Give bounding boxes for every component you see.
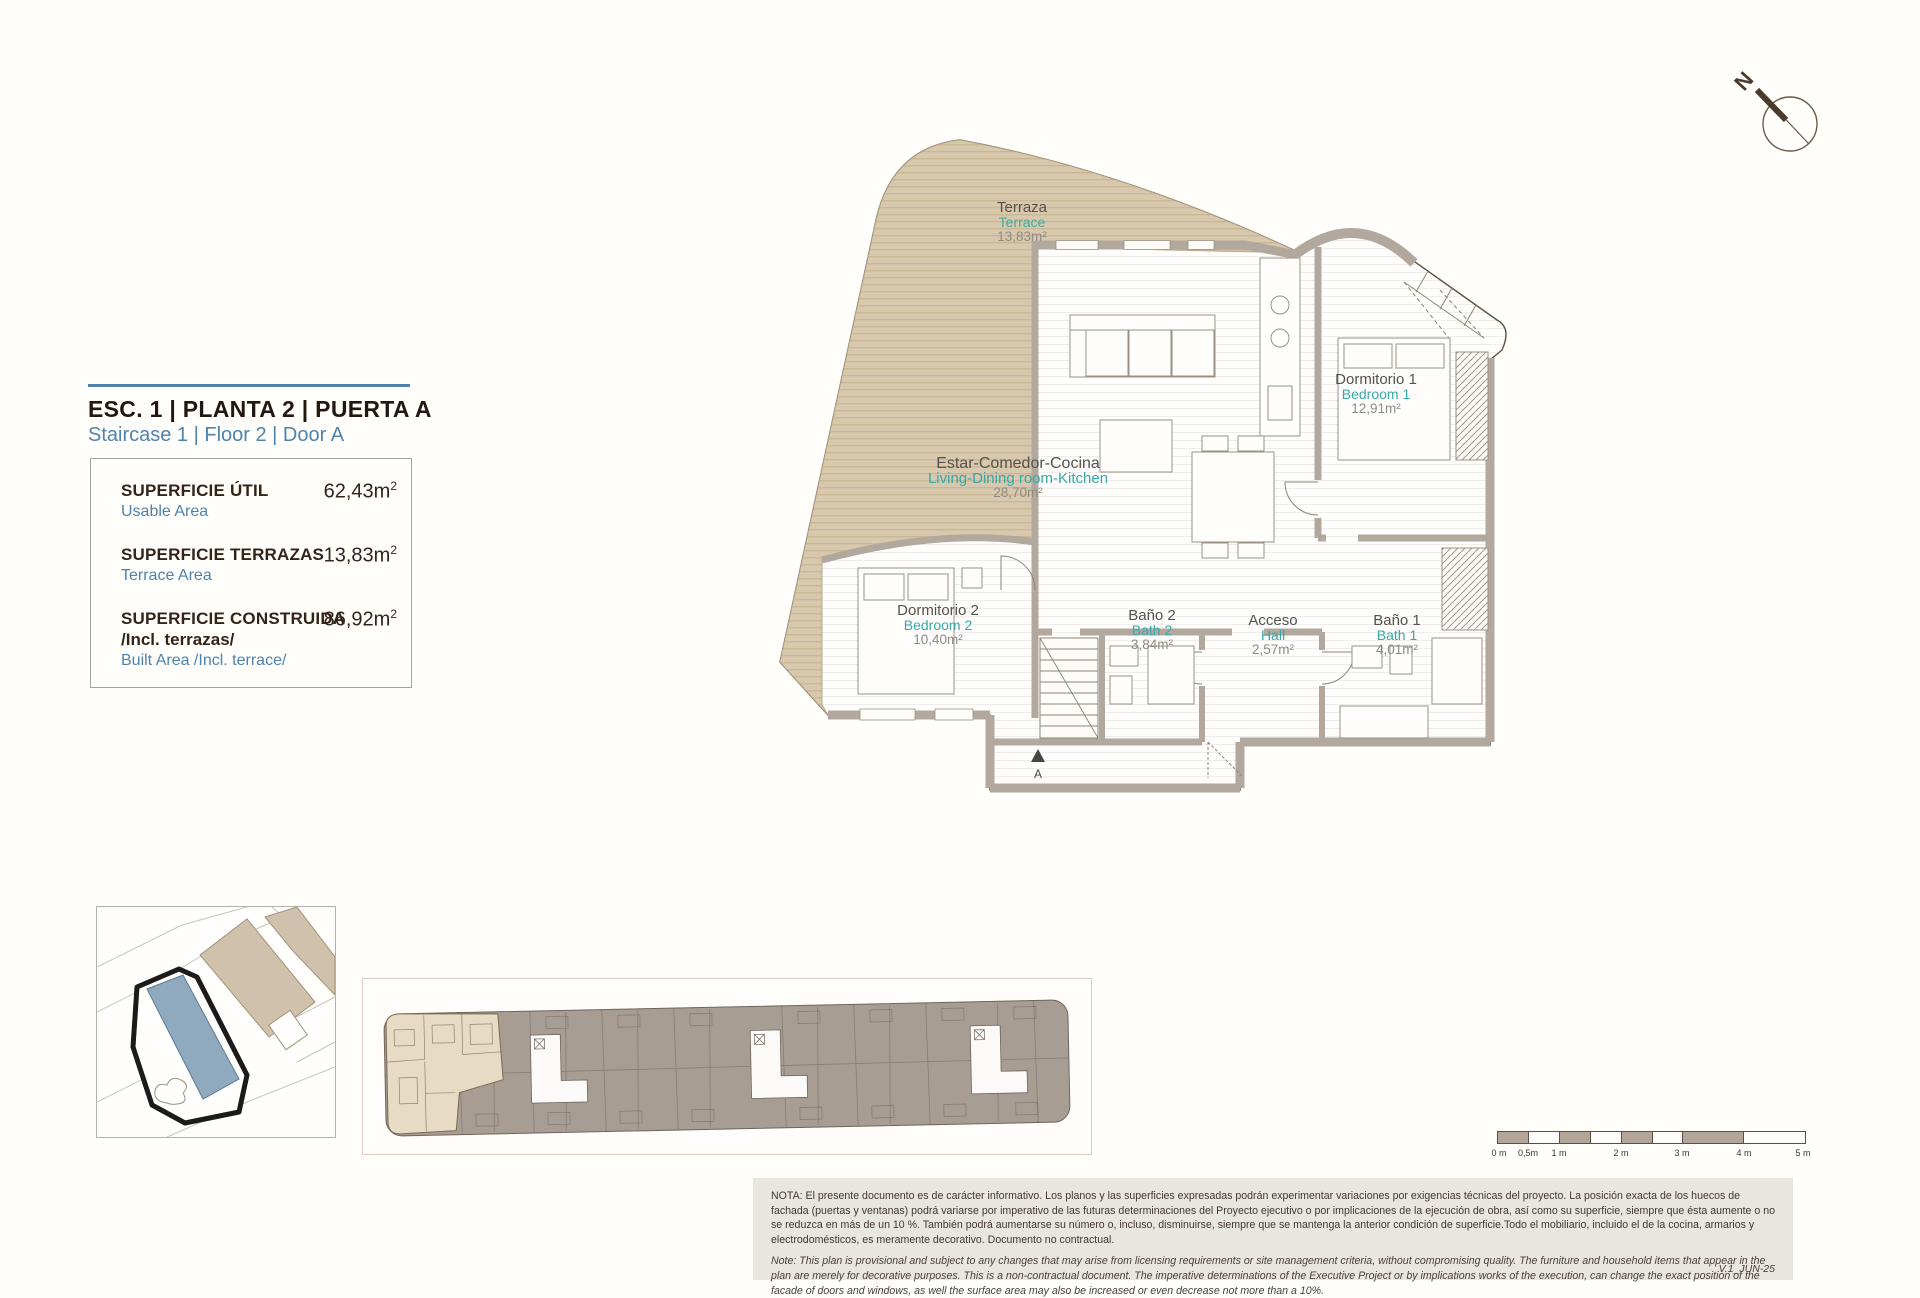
svg-text:28,70m²: 28,70m²	[993, 485, 1043, 500]
floor-plan-page: { "header": { "compass_label": "N" }, "t…	[0, 0, 1920, 1280]
scale-segment	[1560, 1132, 1591, 1143]
svg-text:Bath 2: Bath 2	[1132, 622, 1173, 638]
scale-tick-label: 1 m	[1551, 1148, 1566, 1158]
building-strip-drawing	[363, 979, 1091, 1154]
scale-tick-label: 2 m	[1613, 1148, 1628, 1158]
area-summary-table: SUPERFICIE ÚTIL Usable Area 62,43m2 SUPE…	[90, 458, 412, 688]
area-value: 86,92m2	[324, 607, 397, 632]
plan-version: V.1_JUN-25	[1719, 1263, 1775, 1275]
title-divider	[88, 384, 410, 387]
site-plan-thumbnail	[96, 906, 336, 1138]
stairs	[1040, 638, 1098, 738]
scale-tick-label: 5 m	[1795, 1148, 1810, 1158]
site-plan-drawing	[97, 907, 335, 1137]
scale-segment	[1653, 1132, 1684, 1143]
legal-note: NOTA: El presente documento es de caráct…	[753, 1178, 1793, 1280]
kitchen-island	[1260, 258, 1300, 436]
scale-tick-label: 3 m	[1674, 1148, 1689, 1158]
svg-text:Bath 1: Bath 1	[1377, 627, 1418, 643]
north-compass-icon: N	[1720, 52, 1850, 172]
scale-segment	[1529, 1132, 1560, 1143]
scale-segment	[1498, 1132, 1529, 1143]
area-label-en: Built Area /Incl. terrace/	[121, 652, 397, 670]
scale-segment	[1622, 1132, 1653, 1143]
svg-text:2,57m²: 2,57m²	[1252, 642, 1295, 657]
hall-wardrobe	[1442, 548, 1488, 630]
svg-text:10,40m²: 10,40m²	[913, 632, 963, 647]
sofa	[1070, 315, 1215, 377]
svg-text:12,91m²: 12,91m²	[1351, 401, 1401, 416]
note-spanish: NOTA: El presente documento es de caráct…	[771, 1189, 1775, 1247]
scale-tick-label: 0 m	[1491, 1148, 1506, 1158]
site-highlighted-building	[133, 969, 247, 1123]
svg-text:Hall: Hall	[1261, 627, 1285, 643]
table-row: SUPERFICIE TERRAZAS Terrace Area 13,83m2	[121, 545, 397, 585]
building-key-plan	[362, 978, 1092, 1155]
apartment-floor-plan: Terraza Terrace 13,83m² Estar-Comedor-Co…	[740, 90, 1560, 810]
svg-text:3,84m²: 3,84m²	[1131, 637, 1174, 652]
compass-needle	[1757, 90, 1786, 120]
table-row: SUPERFICIE CONSTRUIDA /Incl. terrazas/ B…	[121, 609, 397, 670]
area-label-es-2: /Incl. terrazas/	[121, 630, 397, 650]
scale-segment	[1683, 1132, 1744, 1143]
svg-text:Terrace: Terrace	[999, 214, 1046, 230]
area-value: 62,43m2	[324, 479, 397, 504]
entrance-letter: A	[1034, 767, 1042, 781]
area-label-en: Terrace Area	[121, 567, 397, 585]
svg-text:13,83m²: 13,83m²	[997, 229, 1047, 244]
scale-segment	[1591, 1132, 1622, 1143]
scale-segment	[1744, 1132, 1805, 1143]
table-row: SUPERFICIE ÚTIL Usable Area 62,43m2	[121, 481, 397, 521]
svg-text:Bedroom 2: Bedroom 2	[904, 617, 973, 633]
bedroom1-wardrobe	[1456, 352, 1488, 460]
area-value: 13,83m2	[324, 543, 397, 568]
note-english: Note: This plan is provisional and subje…	[771, 1254, 1775, 1298]
svg-text:Bedroom 1: Bedroom 1	[1342, 386, 1411, 402]
page-title: ESC. 1 | PLANTA 2 | PUERTA A	[88, 396, 432, 423]
area-label-en: Usable Area	[121, 503, 397, 521]
scale-bar	[1497, 1131, 1806, 1144]
compass-north-label: N	[1729, 67, 1758, 96]
dining-table	[1192, 436, 1274, 558]
coffee-table	[1100, 420, 1172, 472]
page-subtitle: Staircase 1 | Floor 2 | Door A	[88, 424, 344, 447]
scale-tick-label: 0,5m	[1518, 1148, 1538, 1158]
svg-text:4,01m²: 4,01m²	[1376, 642, 1419, 657]
scale-tick-label: 4 m	[1736, 1148, 1751, 1158]
